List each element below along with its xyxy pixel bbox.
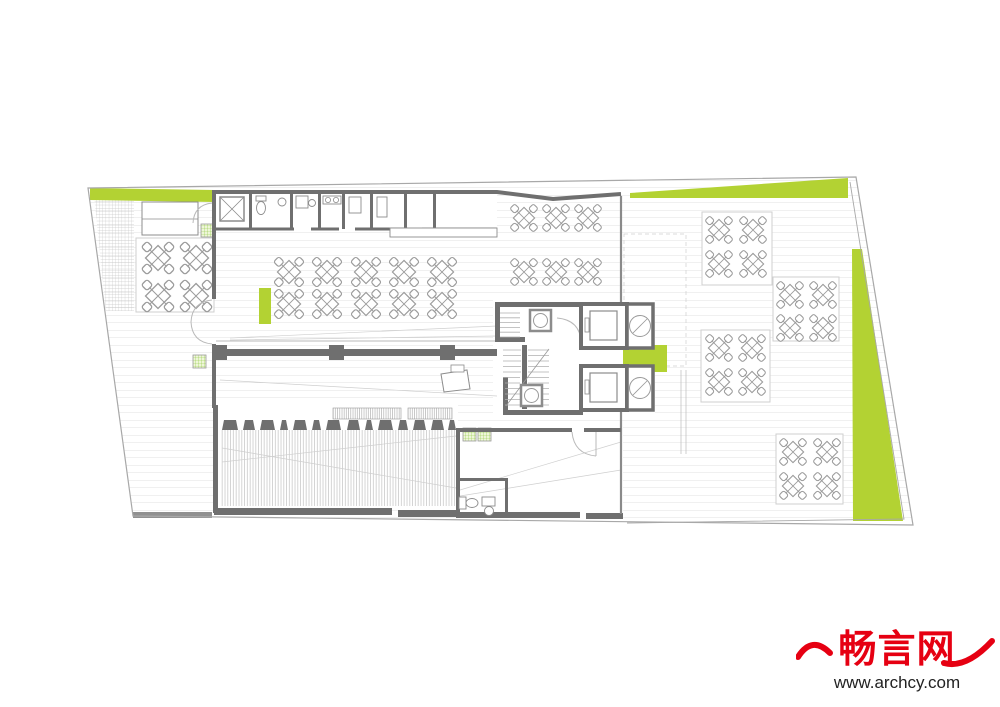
table-with-4-chairs-icon <box>542 204 570 232</box>
table-with-4-chairs-icon <box>312 289 343 320</box>
table-with-4-chairs-icon <box>179 241 212 274</box>
site-url-text: www.archcy.com <box>802 673 992 693</box>
table-with-4-chairs-icon <box>574 204 602 232</box>
table-with-4-chairs-icon <box>312 257 343 288</box>
table-with-4-chairs-icon <box>809 281 837 309</box>
skylight-block <box>347 420 360 430</box>
table-with-4-chairs-icon <box>705 368 733 396</box>
table-with-4-chairs-icon <box>351 289 382 320</box>
patio-bench <box>142 202 198 235</box>
skylight-block <box>222 420 238 430</box>
skylight-block <box>431 420 444 430</box>
green-area-east-wedge <box>852 249 903 521</box>
table-with-4-chairs-icon <box>705 334 733 362</box>
skylight-block <box>293 420 307 430</box>
table-with-4-chairs-icon <box>738 368 766 396</box>
table-with-4-chairs-icon <box>705 250 733 278</box>
table-with-4-chairs-icon <box>738 334 766 362</box>
grating-strip <box>333 408 401 419</box>
skylight-block <box>413 420 426 430</box>
skylight-block <box>326 420 341 430</box>
table-with-4-chairs-icon <box>389 257 420 288</box>
brand-logo-text: 畅言网 <box>838 627 955 671</box>
skylight-block <box>243 420 255 430</box>
table-with-4-chairs-icon <box>389 289 420 320</box>
gravel-grid-strip <box>94 196 134 311</box>
table-with-4-chairs-icon <box>813 472 841 500</box>
grating-strip <box>408 408 452 419</box>
brand-logo: 畅言网 <box>802 627 992 673</box>
service-counter <box>390 228 497 237</box>
service-elevator-icon <box>220 197 244 221</box>
table-with-4-chairs-icon <box>813 438 841 466</box>
table-with-4-chairs-icon <box>510 258 538 286</box>
table-with-4-chairs-icon <box>141 279 174 312</box>
floor-plan-drawing <box>0 0 1000 707</box>
table-with-4-chairs-icon <box>574 258 602 286</box>
planter-grid-icon <box>193 355 206 368</box>
table-with-4-chairs-icon <box>705 216 733 244</box>
watermark: 畅言网 www.archcy.com <box>802 627 992 699</box>
table-with-4-chairs-icon <box>739 250 767 278</box>
table-with-4-chairs-icon <box>351 257 382 288</box>
green-area-dining-accent-bar <box>259 288 271 324</box>
table-with-4-chairs-icon <box>274 257 305 288</box>
skylight-block <box>378 420 393 430</box>
elevator-car-icon <box>590 373 617 402</box>
table-with-4-chairs-icon <box>542 258 570 286</box>
table-with-4-chairs-icon <box>141 241 174 274</box>
table-with-4-chairs-icon <box>427 257 458 288</box>
table-with-4-chairs-icon <box>739 216 767 244</box>
table-with-4-chairs-icon <box>779 438 807 466</box>
table-with-4-chairs-icon <box>510 204 538 232</box>
table-with-4-chairs-icon <box>274 289 305 320</box>
table-with-4-chairs-icon <box>776 314 804 342</box>
table-with-4-chairs-icon <box>779 472 807 500</box>
elevator-car-icon <box>590 311 617 340</box>
page: 畅言网 www.archcy.com <box>0 0 1000 707</box>
table-with-4-chairs-icon <box>427 289 458 320</box>
green-area-north-strip <box>90 188 214 202</box>
table-with-4-chairs-icon <box>809 314 837 342</box>
table-with-4-chairs-icon <box>776 281 804 309</box>
skylight-block <box>260 420 275 430</box>
